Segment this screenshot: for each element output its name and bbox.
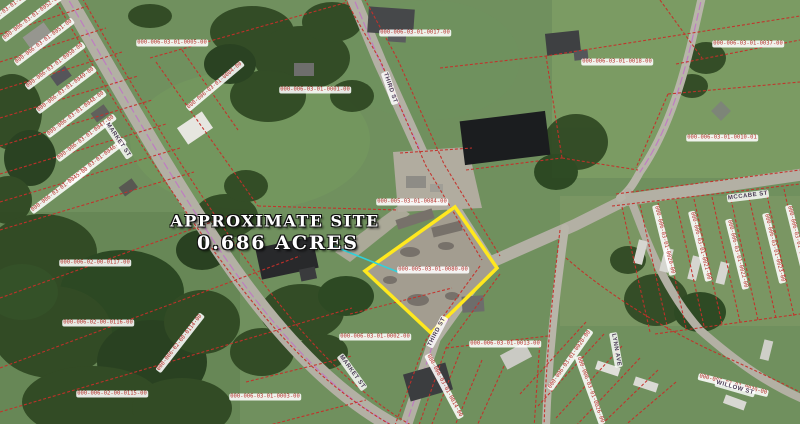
map-canvas [0,0,800,424]
site-callout-line1: APPROXIMATE SITE [170,212,379,231]
aerial-parcel-map: 000-006-03-01-0053-00000-006-03-01-0052-… [0,0,800,424]
large-dark-building [460,111,551,165]
site-callout-line2: 0.686 ACRES [197,232,359,254]
